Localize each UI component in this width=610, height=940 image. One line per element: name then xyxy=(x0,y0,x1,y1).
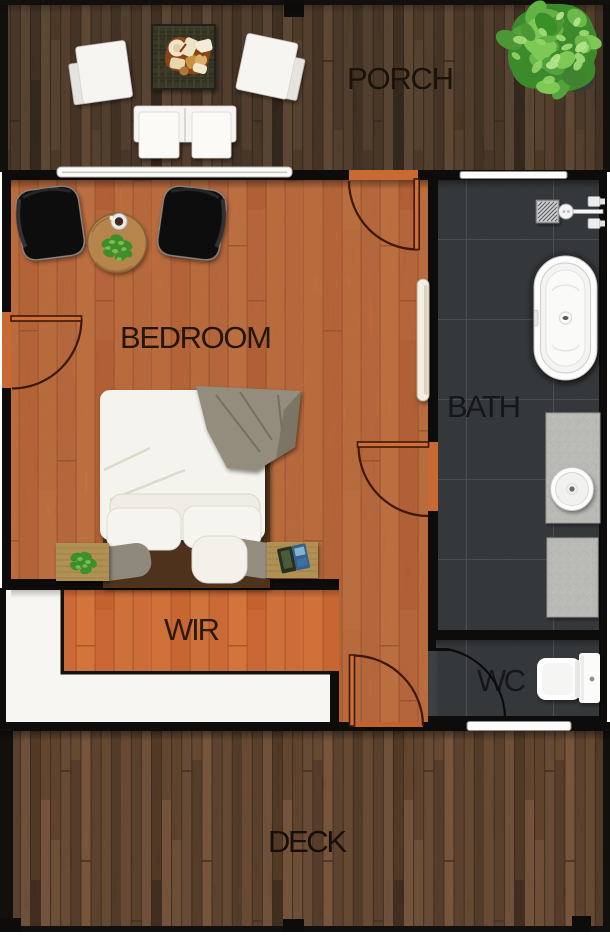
svg-text:BEDROOM: BEDROOM xyxy=(120,320,272,355)
svg-text:PORCH: PORCH xyxy=(347,61,454,96)
svg-text:DECK: DECK xyxy=(268,824,347,859)
svg-text:WIR: WIR xyxy=(164,612,220,647)
svg-text:BATH: BATH xyxy=(447,389,521,424)
